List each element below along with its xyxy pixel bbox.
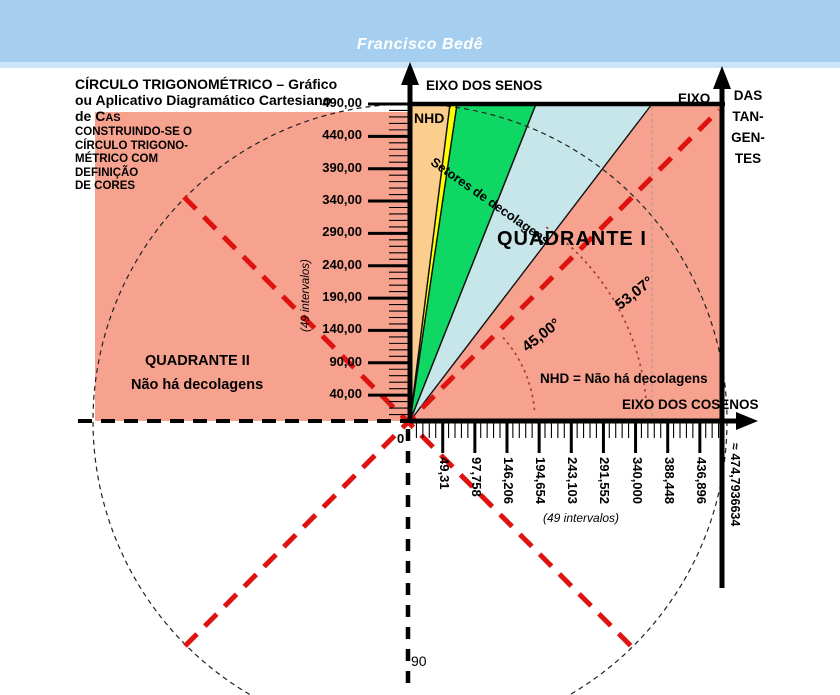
cosenos-axis-arrow xyxy=(736,412,758,430)
slide: Francisco Bedê CÍRCULO TRIGONOMÉTRICO – … xyxy=(0,0,840,695)
tangentes-axis-arrow xyxy=(713,66,731,89)
trig-circle-diagram xyxy=(0,0,840,695)
senos-axis-arrow xyxy=(401,62,419,85)
